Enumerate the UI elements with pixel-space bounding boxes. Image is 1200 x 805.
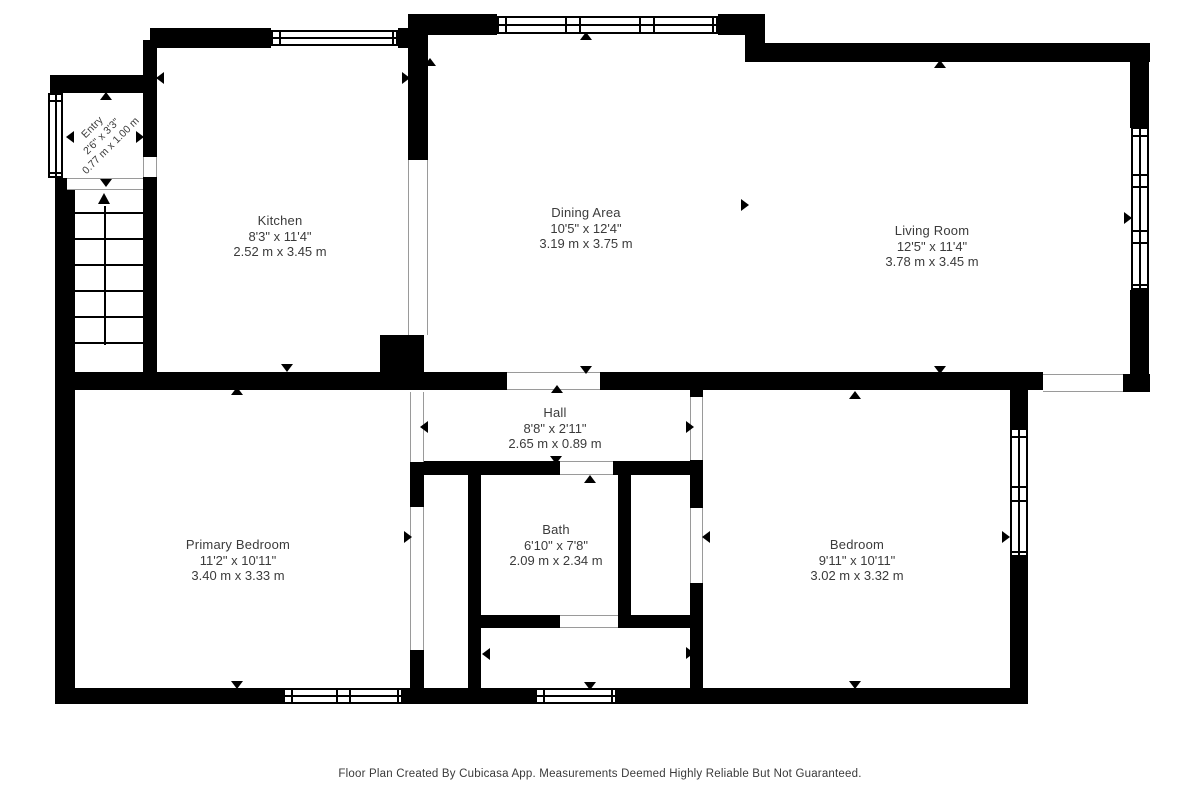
window — [535, 688, 617, 704]
wall-segment — [1123, 374, 1150, 392]
stair-tread — [75, 264, 143, 266]
stair-tread — [75, 342, 143, 344]
room-dim-imperial: 12'5" x 11'4" — [885, 239, 978, 255]
direction-arrow-left — [64, 531, 72, 543]
room-dim-imperial: 10'5" x 12'4" — [539, 221, 632, 237]
direction-arrow-right — [686, 647, 694, 659]
direction-arrow-right — [402, 72, 410, 84]
window-mullion — [579, 18, 581, 32]
stair-tread — [75, 212, 143, 214]
door-opening — [560, 461, 613, 475]
room-label-bath: Bath 6'10" x 7'8" 2.09 m x 2.34 m — [509, 522, 602, 569]
window — [283, 688, 403, 704]
direction-arrow-right — [1124, 212, 1132, 224]
window-mullion — [565, 18, 567, 32]
window-mullion — [543, 690, 545, 702]
direction-arrow-right — [404, 531, 412, 543]
window-mullion — [279, 32, 281, 44]
room-label-living: Living Room 12'5" x 11'4" 3.78 m x 3.45 … — [885, 223, 978, 270]
room-dim-metric: 2.09 m x 2.34 m — [509, 553, 602, 569]
room-name: Kitchen — [233, 213, 326, 229]
wall-segment — [55, 688, 283, 704]
wall-segment — [1130, 290, 1149, 374]
room-dim-metric: 3.40 m x 3.33 m — [186, 568, 290, 584]
room-dim-metric: 3.02 m x 3.32 m — [810, 568, 903, 584]
wall-segment — [408, 35, 428, 160]
wall-segment — [55, 372, 507, 390]
direction-arrow-down — [231, 681, 243, 689]
wall-segment — [1010, 557, 1028, 704]
window-mullion — [392, 32, 394, 44]
window-mullion — [712, 18, 714, 32]
window-mullion — [1133, 230, 1147, 232]
window-mullion — [50, 172, 61, 174]
window-mullion — [653, 18, 655, 32]
direction-arrow-left — [156, 72, 164, 84]
wall-segment — [50, 75, 150, 93]
room-dim-imperial: 8'8" x 2'11" — [508, 421, 601, 437]
wall-segment — [150, 28, 271, 48]
wall-segment — [600, 372, 1043, 390]
wall-segment — [690, 460, 703, 508]
room-dim-imperial: 6'10" x 7'8" — [509, 538, 602, 554]
stair-tread — [75, 316, 143, 318]
door-opening — [143, 157, 157, 177]
window-mullion — [1012, 500, 1026, 502]
window-mullion — [611, 690, 613, 702]
window-mullion — [1018, 430, 1020, 555]
direction-arrow-down — [580, 366, 592, 374]
wall-segment — [408, 14, 497, 35]
wall-segment — [618, 461, 631, 618]
wall-segment — [617, 688, 1028, 704]
wall-segment — [410, 461, 560, 475]
room-name: Bedroom — [810, 537, 903, 553]
wall-segment — [143, 177, 157, 373]
window-mullion — [537, 695, 615, 697]
window-mullion — [1133, 242, 1147, 244]
direction-arrow-down — [934, 366, 946, 374]
room-label-bedroom: Bedroom 9'11" x 10'11" 3.02 m x 3.32 m — [810, 537, 903, 584]
direction-arrow-up — [424, 58, 436, 66]
window-mullion — [1133, 186, 1147, 188]
window-mullion — [397, 690, 399, 702]
wall-segment — [618, 615, 700, 628]
room-dim-metric: 3.19 m x 3.75 m — [539, 236, 632, 252]
window-mullion — [1139, 129, 1141, 288]
window — [271, 30, 398, 46]
wall-segment — [1010, 378, 1028, 428]
window — [48, 93, 63, 178]
window-mullion — [349, 690, 351, 702]
room-dim-imperial: 8'3" x 11'4" — [233, 229, 326, 245]
wall-segment — [410, 650, 424, 704]
wall-segment — [468, 461, 481, 704]
floor-plan-page: Entry 2'6" x 3'3" 0.77 m x 1.00 m Kitche… — [0, 0, 1200, 805]
room-dim-imperial: 9'11" x 10'11" — [810, 553, 903, 569]
wall-segment — [480, 615, 560, 628]
direction-arrow-up — [231, 387, 243, 395]
direction-arrow-down — [550, 456, 562, 464]
disclaimer-text: Floor Plan Created By Cubicasa App. Meas… — [0, 768, 1200, 780]
room-name: Bath — [509, 522, 602, 538]
room-name: Living Room — [885, 223, 978, 239]
window-mullion — [639, 18, 641, 32]
window — [497, 16, 718, 34]
wall-segment — [55, 178, 75, 704]
direction-arrow-right — [686, 421, 694, 433]
door-opening — [408, 160, 428, 335]
door-opening — [1043, 374, 1123, 392]
direction-arrow-left — [482, 648, 490, 660]
stair-up-arrow — [98, 193, 110, 204]
direction-arrow-up — [580, 32, 592, 40]
direction-arrow-up — [100, 92, 112, 100]
wall-segment — [1130, 43, 1149, 128]
floor-plan-canvas — [0, 0, 1200, 805]
room-label-dining: Dining Area 10'5" x 12'4" 3.19 m x 3.75 … — [539, 205, 632, 252]
room-name: Dining Area — [539, 205, 632, 221]
window-mullion — [1012, 436, 1026, 438]
window-mullion — [336, 690, 338, 702]
window-mullion — [273, 37, 396, 39]
window-mullion — [499, 24, 716, 26]
room-dim-metric: 2.65 m x 0.89 m — [508, 436, 601, 452]
direction-arrow-down — [281, 364, 293, 372]
direction-arrow-right — [136, 131, 144, 143]
door-opening — [690, 508, 703, 583]
window-mullion — [1133, 135, 1147, 137]
window-mullion — [285, 695, 401, 697]
wall-segment — [143, 40, 157, 157]
direction-arrow-up — [584, 475, 596, 483]
door-opening — [560, 615, 618, 628]
room-dim-metric: 2.52 m x 3.45 m — [233, 244, 326, 260]
wall-segment — [380, 335, 424, 372]
room-dim-imperial: 11'2" x 10'11" — [186, 553, 290, 569]
room-label-hall: Hall 8'8" x 2'11" 2.65 m x 0.89 m — [508, 405, 601, 452]
window-mullion — [291, 690, 293, 702]
direction-arrow-up — [551, 385, 563, 393]
room-label-kitchen: Kitchen 8'3" x 11'4" 2.52 m x 3.45 m — [233, 213, 326, 260]
stair-direction-line — [104, 206, 106, 345]
window-mullion — [55, 95, 57, 176]
wall-segment — [760, 43, 1150, 62]
window — [1131, 127, 1149, 290]
window-mullion — [1133, 174, 1147, 176]
direction-arrow-left — [420, 421, 428, 433]
window-mullion — [50, 100, 61, 102]
room-name: Hall — [508, 405, 601, 421]
room-label-primary-bedroom: Primary Bedroom 11'2" x 10'11" 3.40 m x … — [186, 537, 290, 584]
window-mullion — [1133, 284, 1147, 286]
door-opening — [410, 507, 424, 650]
staircase — [75, 190, 143, 345]
window-mullion — [1012, 551, 1026, 553]
room-dim-metric: 3.78 m x 3.45 m — [885, 254, 978, 270]
stair-tread — [75, 238, 143, 240]
wall-segment — [690, 583, 703, 704]
direction-arrow-left — [702, 531, 710, 543]
direction-arrow-up — [849, 391, 861, 399]
window-mullion — [505, 18, 507, 32]
direction-arrow-right — [741, 199, 749, 211]
direction-arrow-up — [934, 60, 946, 68]
direction-arrow-down — [849, 681, 861, 689]
room-name: Primary Bedroom — [186, 537, 290, 553]
wall-segment — [690, 372, 703, 397]
stair-tread — [75, 290, 143, 292]
window — [1010, 428, 1028, 557]
direction-arrow-right — [1002, 531, 1010, 543]
direction-arrow-down — [584, 682, 596, 690]
direction-arrow-down — [100, 179, 112, 187]
window-mullion — [1012, 486, 1026, 488]
